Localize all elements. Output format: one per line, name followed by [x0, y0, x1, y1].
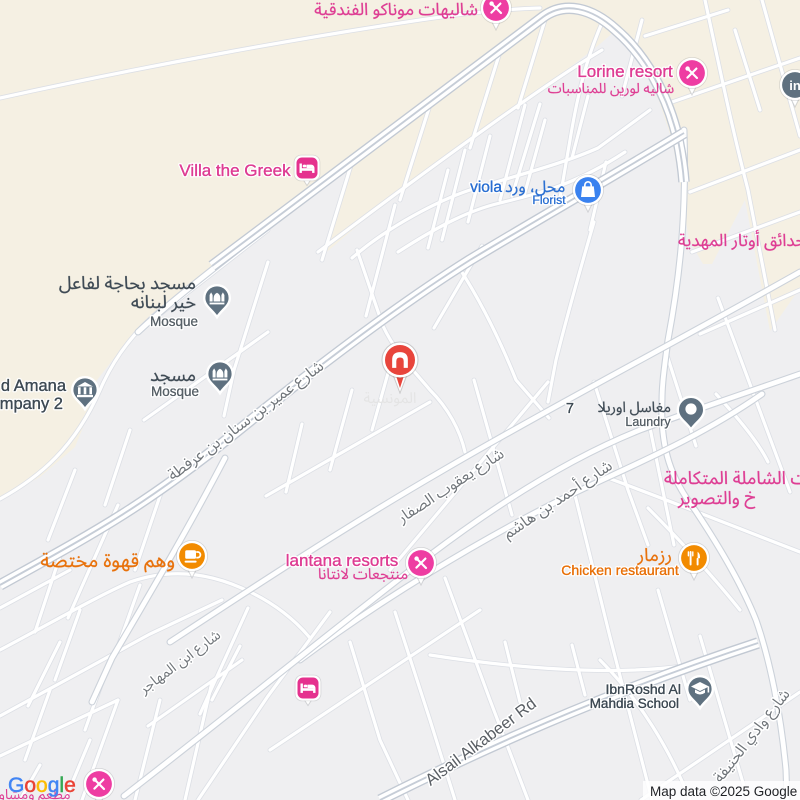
svg-text:Mosque: Mosque — [151, 384, 199, 399]
svg-text:Google: Google — [8, 774, 76, 797]
svg-text:lantana resorts: lantana resorts — [286, 551, 398, 570]
svg-text:Mosque: Mosque — [150, 314, 198, 329]
svg-text:Lorine resort: Lorine resort — [577, 62, 673, 81]
svg-text:Mahdia School: Mahdia School — [590, 696, 679, 711]
svg-text:in: in — [789, 78, 800, 93]
svg-text:Laundry: Laundry — [625, 415, 671, 429]
svg-text:Villa the Greek: Villa the Greek — [179, 161, 291, 180]
svg-text:d Amana: d Amana — [1, 377, 67, 395]
svg-text:IbnRoshd Al: IbnRoshd Al — [606, 681, 682, 697]
svg-text:Chicken restaurant: Chicken restaurant — [561, 562, 679, 578]
svg-text:viola: viola — [470, 179, 502, 196]
svg-text:7: 7 — [566, 401, 574, 417]
svg-text:Map data ©2025 Google: Map data ©2025 Google — [650, 784, 797, 799]
svg-text:mpany 2: mpany 2 — [0, 395, 63, 413]
